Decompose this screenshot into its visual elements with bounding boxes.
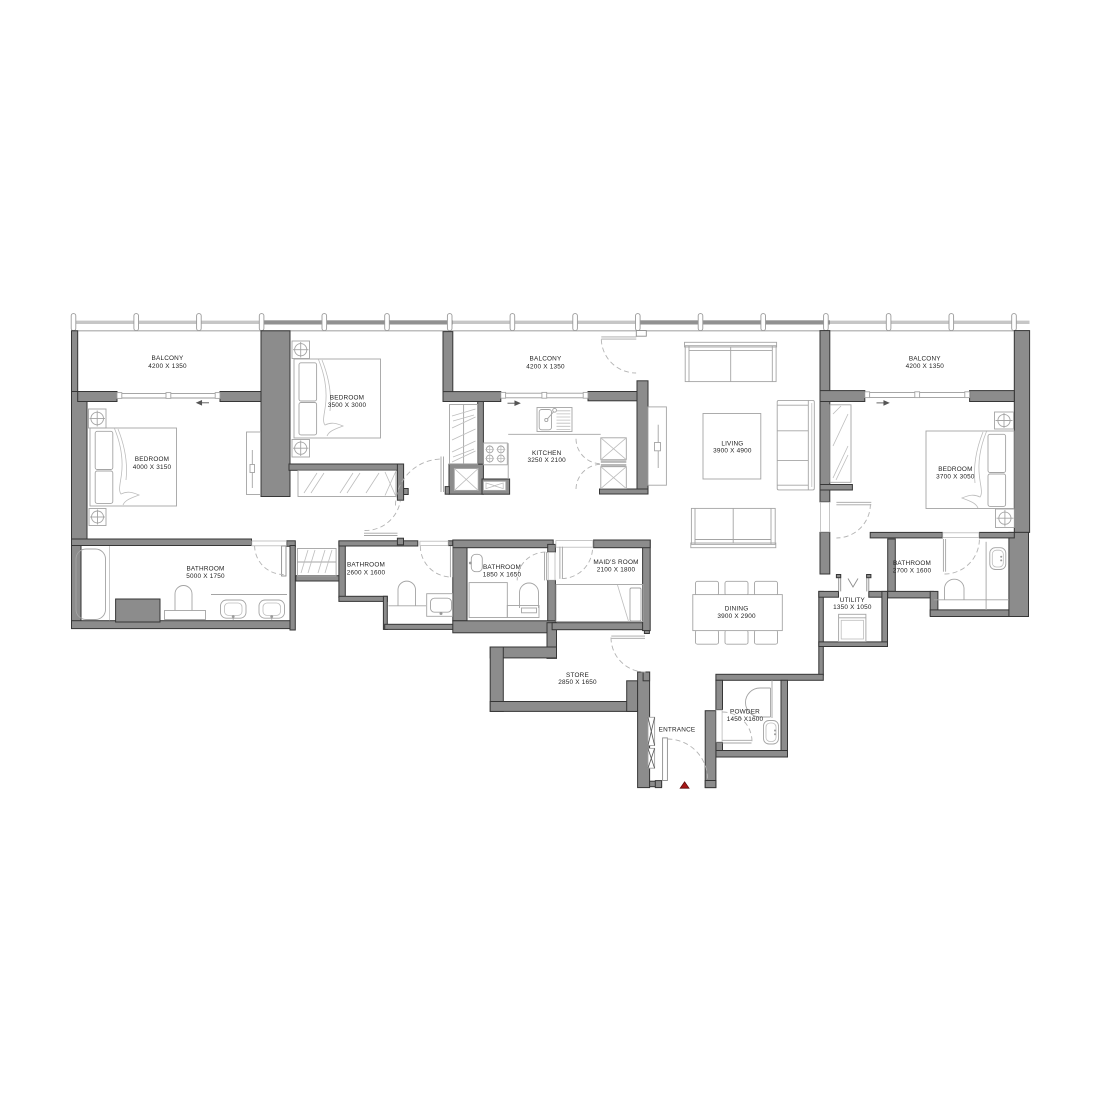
svg-text:BALCONY: BALCONY — [152, 355, 184, 362]
svg-text:3700 X 3050: 3700 X 3050 — [936, 474, 975, 481]
svg-text:BEDROOM: BEDROOM — [938, 466, 972, 473]
svg-text:2850 X 1650: 2850 X 1650 — [558, 679, 597, 686]
svg-text:BATHROOM: BATHROOM — [347, 562, 385, 569]
svg-text:3900 X 2900: 3900 X 2900 — [717, 613, 756, 620]
svg-text:BEDROOM: BEDROOM — [135, 456, 169, 463]
svg-text:BATHROOM: BATHROOM — [483, 564, 521, 571]
svg-text:2700 X 1600: 2700 X 1600 — [893, 567, 932, 574]
svg-text:3250 X 2100: 3250 X 2100 — [527, 457, 566, 464]
svg-text:UTILITY: UTILITY — [840, 597, 866, 604]
svg-text:4200 X 1350: 4200 X 1350 — [148, 363, 187, 370]
svg-text:BALCONY: BALCONY — [530, 356, 562, 363]
svg-text:BALCONY: BALCONY — [909, 356, 941, 363]
svg-text:LIVING: LIVING — [721, 441, 743, 448]
svg-text:1450 X1600: 1450 X1600 — [727, 716, 764, 723]
svg-text:POWDER: POWDER — [730, 709, 760, 716]
svg-text:BATHROOM: BATHROOM — [893, 560, 931, 567]
svg-text:2600 X 1600: 2600 X 1600 — [347, 570, 386, 577]
svg-text:DINING: DINING — [725, 606, 749, 613]
svg-text:4000 X 3150: 4000 X 3150 — [133, 464, 172, 471]
svg-text:3900 X 4900: 3900 X 4900 — [713, 448, 752, 455]
svg-text:ENTRANCE: ENTRANCE — [659, 727, 696, 734]
svg-text:3500 X 3000: 3500 X 3000 — [328, 402, 367, 409]
svg-text:KITCHEN: KITCHEN — [532, 450, 562, 457]
svg-text:4200 X 1350: 4200 X 1350 — [526, 364, 565, 371]
svg-text:MAID'S ROOM: MAID'S ROOM — [593, 559, 638, 566]
svg-text:STORE: STORE — [566, 672, 589, 679]
svg-text:2100 X 1800: 2100 X 1800 — [597, 567, 636, 574]
svg-text:1850 X 1650: 1850 X 1650 — [483, 572, 522, 579]
svg-text:5000 X 1750: 5000 X 1750 — [186, 573, 225, 580]
svg-text:BATHROOM: BATHROOM — [186, 566, 224, 573]
svg-text:4200 X 1350: 4200 X 1350 — [906, 363, 945, 370]
svg-text:BEDROOM: BEDROOM — [330, 395, 364, 402]
svg-text:1350 X 1050: 1350 X 1050 — [833, 604, 872, 611]
